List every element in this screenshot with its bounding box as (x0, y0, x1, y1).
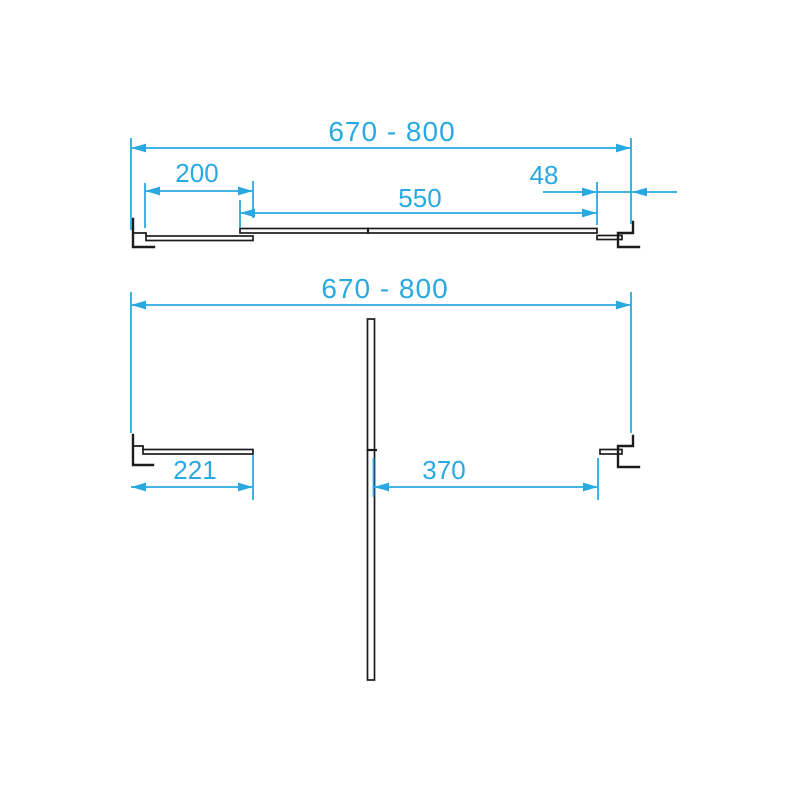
dim-label-top-overall: 670 - 800 (328, 116, 455, 147)
arrowhead-left (145, 187, 160, 196)
technical-drawing-page: 670 - 800 200 550 48 670 - 800 221 370 (0, 0, 800, 800)
arrowhead-left (131, 301, 146, 310)
technical-drawing: 670 - 800 200 550 48 670 - 800 221 370 (0, 0, 800, 800)
dim-label-top-middle: 550 (398, 183, 441, 213)
dim-label-bottom-overall: 670 - 800 (321, 273, 448, 304)
sliding-panel-section (240, 229, 597, 234)
dim-label-bottom-left: 221 (173, 455, 216, 485)
dimension-arrowheads (131, 144, 647, 492)
fixed-panel-plan (143, 450, 253, 455)
arrowhead-left (131, 483, 146, 492)
door-panel-plan (368, 319, 375, 680)
arrowhead-right (238, 187, 253, 196)
dimension-labels: 670 - 800 200 550 48 670 - 800 221 370 (173, 116, 558, 485)
dim-label-bottom-right: 370 (422, 455, 465, 485)
arrowhead-right (238, 483, 253, 492)
arrowhead-right (616, 144, 631, 153)
wall-profile-left-plan-flange (133, 446, 143, 450)
arrowhead-right (582, 209, 597, 218)
arrowhead-right (582, 188, 597, 197)
arrowhead-left (632, 188, 647, 197)
wall-profile-right (618, 222, 639, 247)
bottom-plan-view-profiles (133, 319, 639, 680)
dim-label-top-left: 200 (175, 158, 218, 188)
arrowhead-left (240, 209, 255, 218)
arrowhead-left (374, 483, 389, 492)
fixed-panel-section (146, 236, 253, 241)
arrowhead-right (616, 301, 631, 310)
dim-label-top-right: 48 (530, 160, 559, 190)
arrowhead-right (583, 483, 598, 492)
arrowhead-left (131, 144, 146, 153)
top-section-view-profiles (133, 219, 639, 247)
wall-profile-left-flange (133, 233, 146, 236)
